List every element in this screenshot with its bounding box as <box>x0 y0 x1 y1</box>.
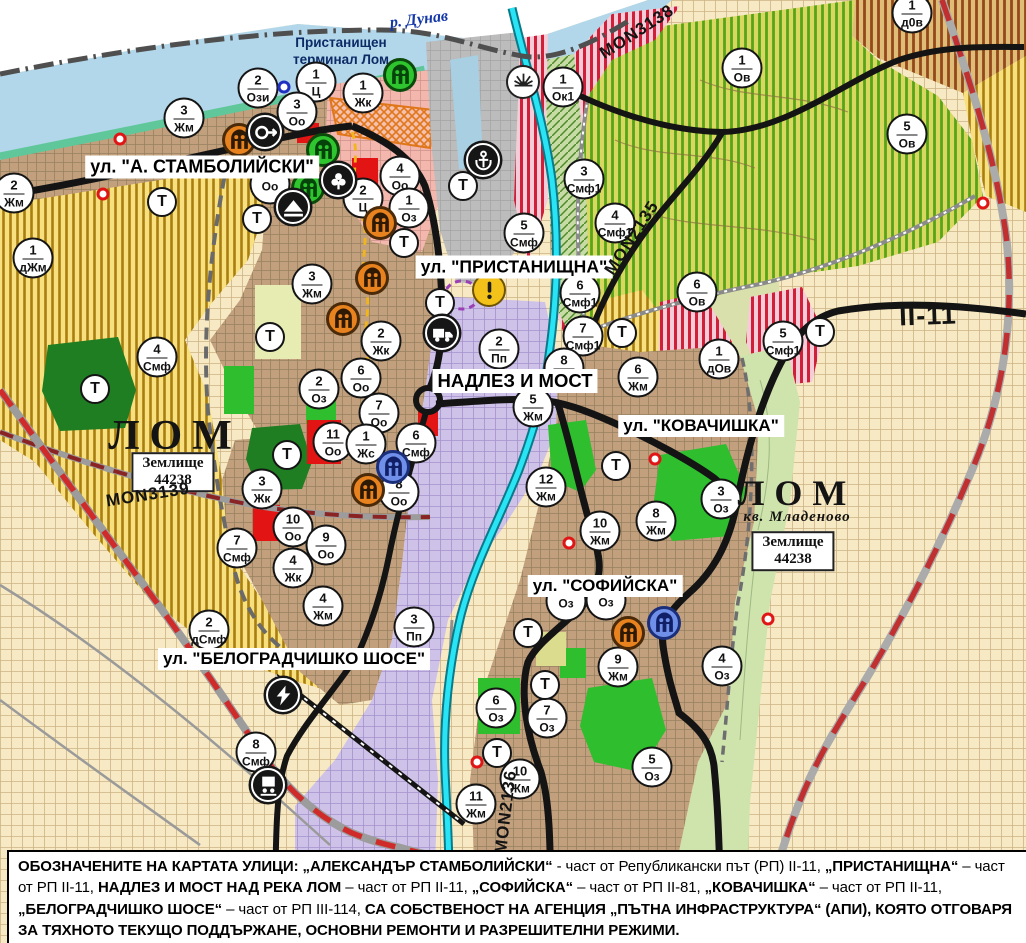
zone-circle: 3Оо <box>277 92 318 133</box>
zone-circle: 4Жк <box>273 548 314 589</box>
zone-circle: 2Жк <box>361 321 402 362</box>
street-label: НАДЛЕЗ И МОСТ <box>432 369 597 393</box>
zone-circle: 11Жм <box>456 784 497 825</box>
sun-icon <box>506 65 540 99</box>
note-segment: - част от Републикански път (РП) II-11, <box>553 858 825 875</box>
terrain-t-circle: Т <box>805 317 835 347</box>
zone-circle: 6Смф1 <box>560 273 601 314</box>
note-segment: „КОВАЧИШКА“ <box>705 879 816 896</box>
zone-circle: 5Смф <box>504 213 545 254</box>
zone-circle: 6Оз <box>476 688 517 729</box>
zone-circle: 9Жм <box>598 647 639 688</box>
map-overlay: р. Дунав Пристанищентерминал Лом 2Ози1Ц3… <box>0 0 1026 943</box>
zone-circle: 5Смф1 <box>763 321 804 362</box>
street-label: ул. "БЕЛОГРАДЧИШКО ШОСЕ" <box>158 648 430 670</box>
red-ring-dot <box>114 133 127 146</box>
land-plot-box: Землище44238 <box>751 531 834 571</box>
zone-circle: 4Смф <box>137 337 178 378</box>
road-number-label: MON2136 <box>491 769 521 855</box>
monument-icon <box>647 606 681 640</box>
zone-circle: 3Смф1 <box>564 159 605 200</box>
terrain-t-circle: Т <box>607 318 637 348</box>
map-page: р. Дунав Пристанищентерминал Лом 2Ози1Ц3… <box>0 0 1026 943</box>
mound-icon <box>276 190 310 224</box>
terrain-t-circle: Т <box>601 451 631 481</box>
zone-circle: 12Жм <box>526 467 567 508</box>
zone-circle: 3Жк <box>242 469 283 510</box>
terrain-t-circle: Т <box>242 204 272 234</box>
river-danube-label: р. Дунав <box>389 8 449 33</box>
zone-circle: 5Ов <box>887 114 928 155</box>
note-segment: – част от РП III-114, <box>222 901 365 918</box>
trefoil-icon <box>321 163 355 197</box>
terrain-t-circle: Т <box>530 670 560 700</box>
note-segment: – част от РП II-11, <box>341 879 472 896</box>
zone-circle: 7Оз <box>527 698 568 739</box>
zone-circle: 3Жм <box>292 264 333 305</box>
zone-circle: 3Пп <box>394 607 435 648</box>
red-ring-dot <box>649 453 662 466</box>
arrow-icon <box>248 115 282 149</box>
zone-circle: 1Ок1 <box>543 67 584 108</box>
zone-circle: 7Смф <box>217 528 258 569</box>
note-segment: „БЕЛОГРАДЧИШКО ШОСЕ“ <box>18 901 222 918</box>
zone-circle: 2Оз <box>299 369 340 410</box>
note-segment: ОБОЗНАЧЕНИТЕ НА КАРТАТА УЛИЦИ: „АЛЕКСАНД… <box>18 858 553 875</box>
zone-circle: 8Смф <box>236 732 277 773</box>
zone-circle: 3Жм <box>164 98 205 139</box>
city-name-label: ЛОМ <box>108 418 242 456</box>
terrain-t-circle: Т <box>448 171 478 201</box>
terrain-t-circle: Т <box>513 618 543 648</box>
map-note-text: ОБОЗНАЧЕНИТЕ НА КАРТАТА УЛИЦИ: „АЛЕКСАНД… <box>18 856 1018 942</box>
terrain-t-circle: Т <box>255 322 285 352</box>
terrain-t-circle: Т <box>80 374 110 404</box>
zone-circle: 2Ози <box>238 68 279 109</box>
street-label: ул. "СОФИЙСКА" <box>528 575 683 597</box>
red-ring-dot <box>471 756 484 769</box>
truck-icon <box>425 316 459 350</box>
red-ring-dot <box>563 537 576 550</box>
note-segment: „СОФИЙСКА“ <box>472 879 573 896</box>
terrain-t-circle: Т <box>272 440 302 470</box>
port-terminal-line1: Пристанищен <box>295 35 386 50</box>
zone-circle: 4Оз <box>702 646 743 687</box>
zone-circle: 8Жм <box>636 501 677 542</box>
zone-circle: 1Ов <box>722 48 763 89</box>
road-number-label: MON3138 <box>596 1 678 64</box>
map-note: ОБОЗНАЧЕНИТЕ НА КАРТАТА УЛИЦИ: „АЛЕКСАНД… <box>7 850 1026 943</box>
zone-circle: 4Жм <box>303 586 344 627</box>
terrain-t-circle: Т <box>425 288 455 318</box>
zone-circle: 2Пп <box>479 329 520 370</box>
train-icon <box>251 768 285 802</box>
anchor-icon <box>466 143 500 177</box>
zone-circle: 1дЖм <box>13 238 54 279</box>
red-ring-dot <box>97 188 110 201</box>
terrain-t-circle: Т <box>482 738 512 768</box>
monument-icon <box>363 206 397 240</box>
zone-circle: 1дОв <box>699 339 740 380</box>
note-segment: – част от РП II-81, <box>573 879 705 896</box>
road-number-label: II-11 <box>899 300 958 333</box>
zone-circle: 1Жк <box>343 73 384 114</box>
zone-circle: 1д0в <box>892 0 933 34</box>
monument-icon <box>611 616 645 650</box>
zone-circle: 3Оз <box>701 479 742 520</box>
zone-circle: 10Жм <box>580 511 621 552</box>
zone-circle: 2дСмф <box>189 610 230 651</box>
street-label: ул. "А. СТАМБОЛИЙСКИ" <box>85 156 319 179</box>
zone-circle: 6Жм <box>618 357 659 398</box>
red-ring-dot <box>762 613 775 626</box>
zone-circle: 2Жм <box>0 173 35 214</box>
blue-ring-dot <box>278 81 291 94</box>
monument-icon <box>355 261 389 295</box>
monument-icon <box>326 302 360 336</box>
zone-circle: 5Оз <box>632 747 673 788</box>
note-segment: – част от РП II-11, <box>816 879 942 896</box>
red-ring-dot <box>977 197 990 210</box>
monument-icon <box>383 58 417 92</box>
street-label: ул. "ПРИСТАНИЩНА" <box>416 256 613 279</box>
note-segment: „ПРИСТАНИЩНА“ <box>825 858 958 875</box>
terrain-t-circle: Т <box>147 187 177 217</box>
note-segment: НАДЛЕЗ И МОСТ НАД РЕКА ЛОМ <box>98 879 341 896</box>
zone-circle: 6Ов <box>677 272 718 313</box>
monument-icon <box>376 450 410 484</box>
street-label: ул. "КОВАЧИШКА" <box>618 415 784 437</box>
lightning-icon <box>266 678 300 712</box>
city-name-label: ЛОМкв. Младеново <box>738 477 857 525</box>
